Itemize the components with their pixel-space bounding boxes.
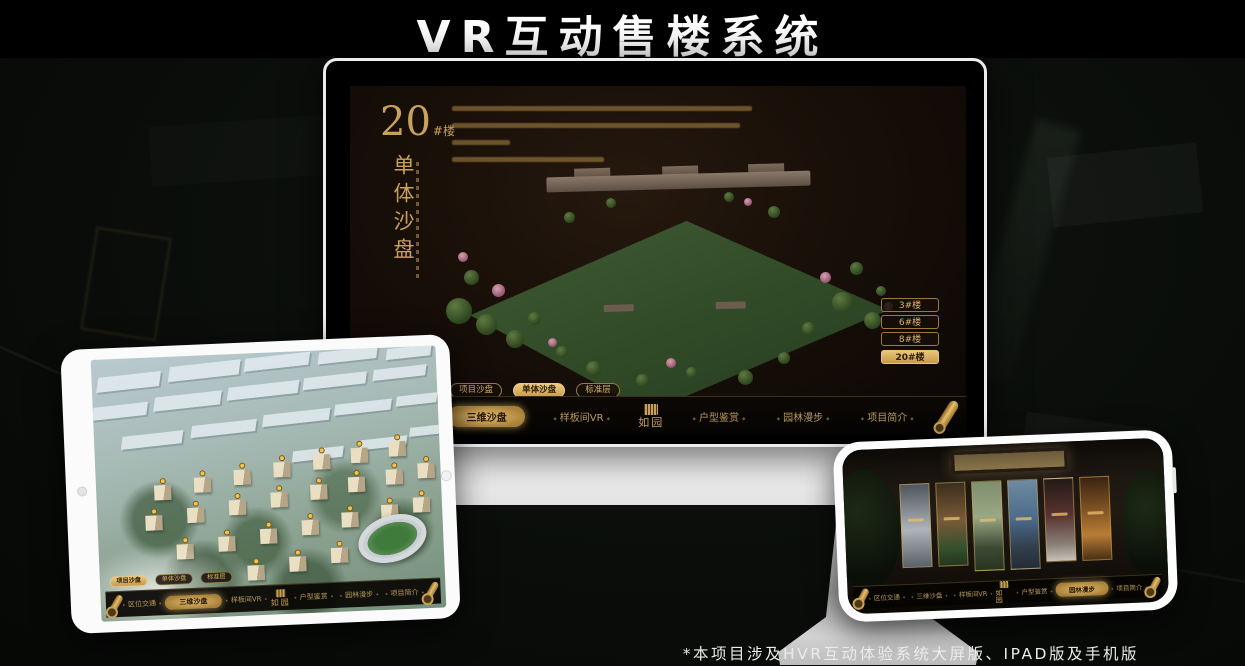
background-building (1047, 142, 1203, 227)
nav-item-showroom-vr[interactable]: 样板间VR (950, 587, 995, 599)
description-line (452, 140, 510, 145)
tree (606, 198, 616, 208)
tree (636, 374, 649, 387)
residential-building (233, 469, 251, 485)
nav-item-showroom-vr[interactable]: 样板间VR (550, 409, 613, 424)
nav-item-floorplans[interactable]: 户型鉴赏 (291, 590, 336, 602)
residential-building (386, 469, 404, 485)
scene-card-label (943, 517, 959, 521)
tree (850, 262, 863, 275)
scene-card[interactable] (1007, 479, 1041, 570)
ruyuan-logo[interactable]: 如园 (638, 404, 664, 428)
nav-item-3d-sandtable[interactable]: 三维沙盘 (448, 406, 525, 427)
tablet-device: 项目沙盘 单体沙盘 标准层 区位交通 三维沙盘 样板间VR 如园 户型鉴赏 园林… (60, 334, 461, 634)
nav-item-garden-walk[interactable]: 园林漫步 (774, 409, 833, 424)
scene-card[interactable] (971, 480, 1005, 571)
footnote: *本项目涉及HVR互动体验系统大屏版、IPAD版及手机版 (683, 642, 1139, 664)
residential-building (194, 477, 212, 493)
nav-item-garden-walk[interactable]: 园林漫步 (1055, 581, 1108, 597)
plant-silhouette (1120, 467, 1169, 579)
logo-text: 如园 (995, 589, 1013, 604)
scene-card-gallery (899, 476, 1112, 574)
flower-bush (548, 338, 557, 347)
tree (768, 206, 780, 218)
phone-app-ui: 区位交通 三维沙盘 样板间VR 如园 户型鉴赏 园林漫步 项目简介 (842, 438, 1169, 615)
seal-icon (999, 580, 1008, 587)
panel-title: 单体沙盘 (388, 154, 418, 266)
residential-building (270, 492, 288, 508)
residential-building (310, 484, 328, 500)
tree (506, 330, 524, 348)
residential-building (145, 515, 163, 531)
residential-building (313, 454, 331, 470)
flower-bush (492, 284, 505, 297)
tree (876, 286, 886, 296)
plant-silhouette (842, 468, 904, 591)
residential-building (417, 463, 435, 479)
promo-canvas: VR互动售楼系统 20#楼 单体沙盘 (0, 0, 1245, 666)
light-fixture (951, 447, 1068, 474)
flower-bush (666, 358, 676, 368)
description-line (452, 106, 752, 111)
scroll-icon[interactable] (1146, 576, 1161, 597)
background-sign (80, 227, 171, 342)
tab-single-sandtable[interactable]: 单体沙盘 (155, 573, 193, 585)
nav-item-location[interactable]: 区位交通 (865, 591, 908, 603)
tree (476, 314, 497, 335)
nav-item-showroom-vr[interactable]: 样板间VR (222, 593, 270, 605)
building-button-3[interactable]: 3#楼 (881, 298, 939, 312)
home-button[interactable] (441, 470, 452, 481)
model-building (552, 171, 807, 310)
residential-building (229, 500, 247, 516)
ruyuan-logo[interactable]: 如园 (995, 580, 1014, 604)
tree (446, 298, 472, 324)
tree (778, 352, 790, 364)
scene-card-label (1087, 512, 1103, 516)
tab-project-sandtable[interactable]: 项目沙盘 (110, 575, 148, 587)
nav-item-garden-walk[interactable]: 园林漫步 (336, 589, 381, 601)
flower-bush (820, 272, 831, 283)
nav-item-location[interactable]: 区位交通 (119, 598, 164, 610)
unit-label: 20#楼 (380, 102, 455, 142)
scene-card-label (907, 519, 923, 523)
tree (864, 312, 881, 329)
entrance-canopy (604, 304, 634, 312)
tree (586, 361, 601, 376)
tree (556, 346, 568, 358)
residential-building (247, 565, 265, 581)
side-button[interactable] (1172, 467, 1177, 493)
scene-card[interactable] (935, 482, 968, 567)
scene-card[interactable] (1043, 477, 1076, 562)
scene-card-label (1051, 513, 1067, 517)
phone-device: 区位交通 三维沙盘 样板间VR 如园 户型鉴赏 园林漫步 项目简介 (833, 429, 1179, 622)
tree (686, 367, 697, 378)
building-facade (553, 184, 808, 310)
residential-building (331, 547, 349, 563)
nav-item-floorplans[interactable]: 户型鉴赏 (1013, 585, 1056, 597)
residential-building (351, 447, 369, 463)
scene-card-label (1015, 517, 1031, 521)
residential-building (302, 520, 320, 536)
residential-building (341, 512, 359, 528)
tree (528, 312, 541, 325)
nav-item-3d-sandtable[interactable]: 三维沙盘 (165, 593, 222, 609)
tree (832, 292, 853, 313)
residential-building (218, 536, 236, 552)
building-button-8[interactable]: 8#楼 (881, 332, 939, 346)
tree (802, 322, 815, 335)
residential-building (388, 441, 406, 457)
scene-card[interactable] (899, 483, 932, 568)
nav-item-project-intro[interactable]: 项目简介 (858, 409, 917, 424)
tree (464, 270, 479, 285)
scene-card[interactable] (1079, 476, 1112, 561)
ruyuan-logo[interactable]: 如园 (270, 588, 291, 607)
residential-building (260, 528, 278, 544)
panel-title-divider (416, 162, 419, 282)
flower-bush (744, 198, 752, 206)
residential-building (289, 556, 307, 572)
page-title: VR互动售楼系统 (0, 1, 1245, 65)
tree (724, 192, 734, 202)
phone-bottom-nav: 区位交通 三维沙盘 样板间VR 如园 户型鉴赏 园林漫步 项目简介 (853, 574, 1163, 609)
tree (564, 212, 575, 223)
nav-item-3d-sandtable[interactable]: 三维沙盘 (908, 589, 951, 601)
tablet-app-ui: 项目沙盘 单体沙盘 标准层 区位交通 三维沙盘 样板间VR 如园 户型鉴赏 园林… (91, 346, 447, 622)
residential-building (273, 462, 291, 478)
residential-building (348, 477, 366, 493)
seal-icon (644, 404, 658, 415)
background-building (148, 113, 352, 187)
camera-icon (77, 486, 87, 496)
tree (738, 370, 753, 385)
logo-text: 如园 (271, 598, 291, 607)
logo-text: 如园 (638, 417, 664, 428)
description-line (452, 123, 740, 128)
building-button-6[interactable]: 6#楼 (881, 315, 939, 329)
scroll-icon[interactable] (934, 399, 960, 433)
scene-card-label (979, 518, 995, 522)
residential-building (154, 485, 172, 501)
residential-building (413, 497, 431, 513)
building-button-20[interactable]: 20#楼 (881, 350, 939, 364)
unit-number: 20 (380, 99, 431, 145)
seal-icon (275, 589, 285, 597)
tab-standard-floor[interactable]: 标准层 (201, 571, 233, 583)
view-tabs: 项目沙盘 单体沙盘 标准层 (450, 377, 626, 398)
nav-item-floorplans[interactable]: 户型鉴赏 (689, 409, 748, 424)
entrance-canopy (716, 301, 746, 309)
flower-bush (458, 252, 468, 262)
residential-building (187, 507, 205, 523)
